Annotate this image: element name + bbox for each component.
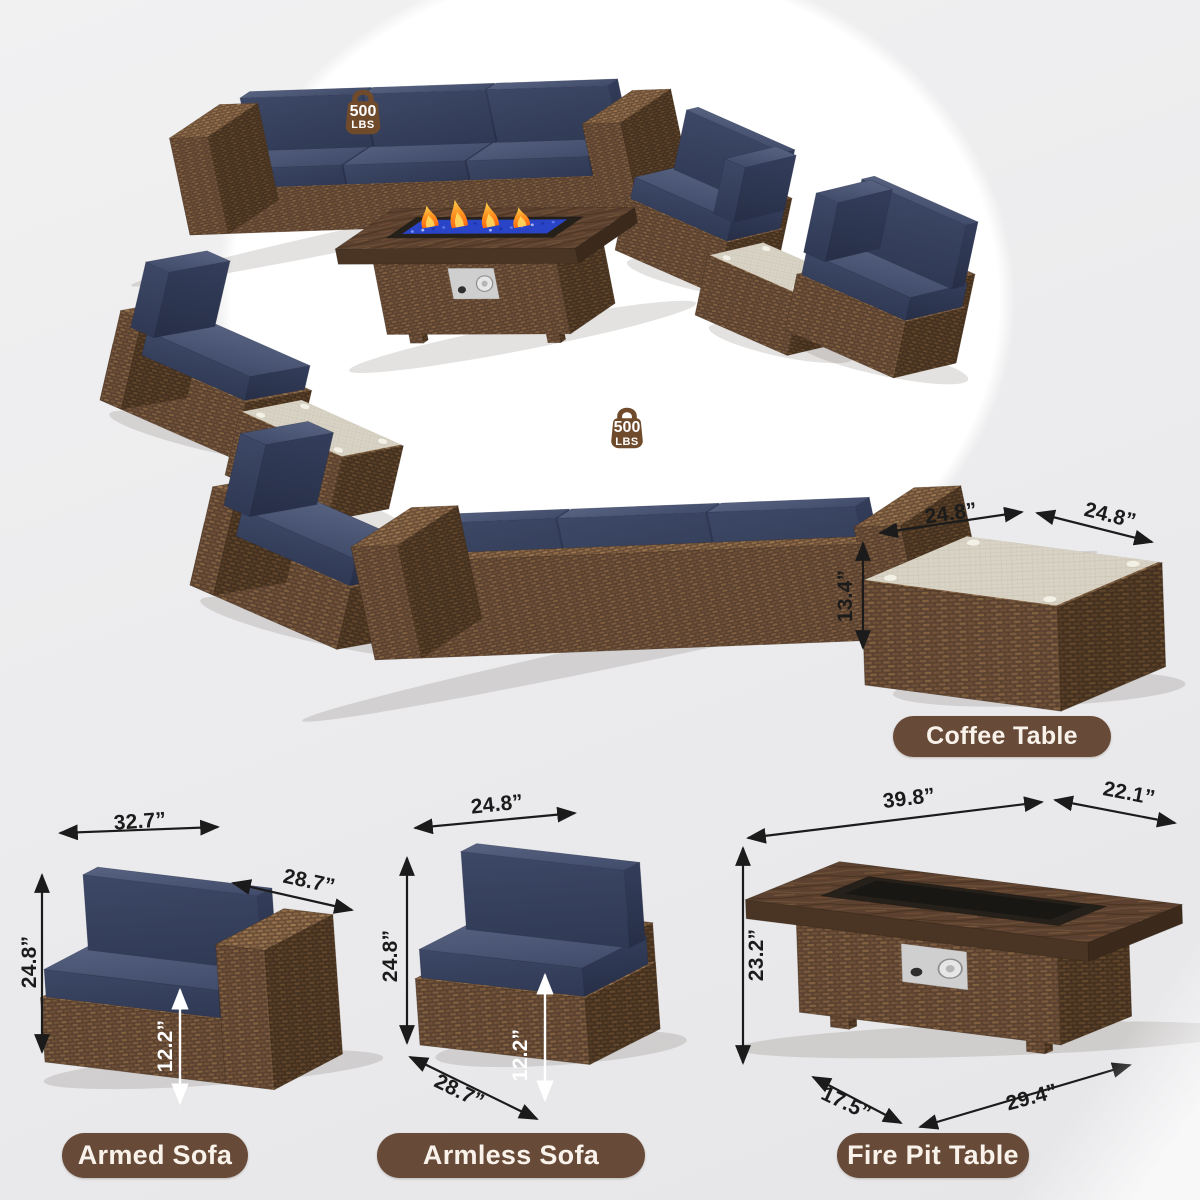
- armless-sofa-height-dim: 24.8”: [379, 930, 403, 982]
- fire-pit-table-image: [715, 770, 1200, 1100]
- armless-sofa-image: [370, 790, 710, 1130]
- weight-unit: LBS: [606, 437, 648, 448]
- armed-sofa-label-pill: Armed Sofa: [62, 1133, 248, 1178]
- weight-value: 500: [340, 104, 386, 120]
- armed-sofa-width-dim: 32.7”: [113, 808, 167, 836]
- weight-capacity-badge: 500 LBS: [606, 404, 648, 452]
- weight-capacity-text: 500 LBS: [606, 420, 648, 448]
- coffee-table-label-pill: Coffee Table: [893, 716, 1111, 757]
- weight-unit: LBS: [340, 120, 386, 131]
- armless-sofa-seat-height-dim: 12.2”: [509, 1029, 533, 1081]
- fire-pit-height-dim: 23.2”: [745, 929, 769, 981]
- coffee-table-height-dim: 13.4”: [834, 570, 858, 622]
- armed-sofa-height-dim: 24.8”: [18, 936, 42, 988]
- armed-sofa-image: [15, 800, 385, 1130]
- armed-sofa-seat-height-dim: 12.2”: [154, 1020, 178, 1072]
- fire-pit-table-label-pill: Fire Pit Table: [837, 1133, 1029, 1178]
- weight-value: 500: [606, 420, 648, 436]
- weight-capacity-badge: 500 LBS: [340, 86, 386, 138]
- weight-capacity-text: 500 LBS: [340, 104, 386, 132]
- patio-set-infographic: 500 LBS 500 LBS 24.8” 24.8” 13.4” 32.7” …: [0, 0, 1200, 1200]
- armless-sofa-label-pill: Armless Sofa: [377, 1133, 645, 1178]
